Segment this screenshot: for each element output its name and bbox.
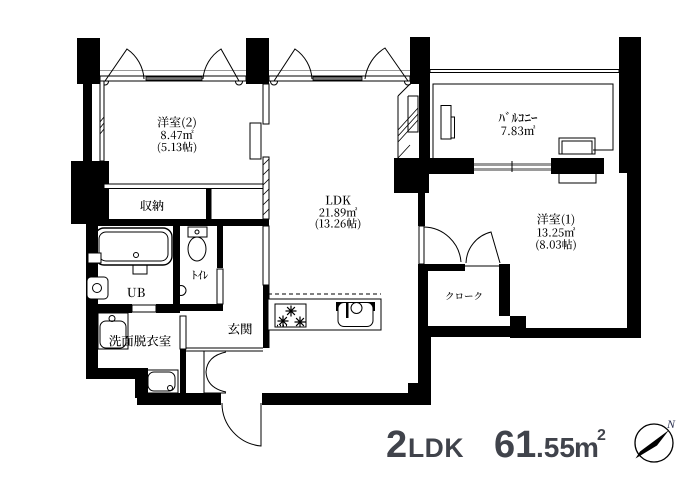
svg-text:2: 2: [597, 427, 606, 444]
svg-text:61: 61: [494, 424, 536, 466]
svg-text:2: 2: [386, 424, 407, 466]
svg-text:.55: .55: [536, 432, 575, 463]
svg-text:N: N: [666, 417, 676, 431]
svg-text:m: m: [574, 432, 599, 463]
svg-text:LDK: LDK: [408, 433, 464, 463]
